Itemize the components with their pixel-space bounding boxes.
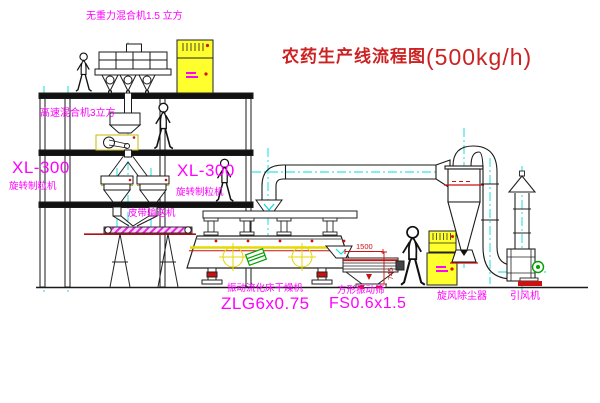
label-gravity-mixer: 无重力混合机1.5 立方 (86, 12, 183, 22)
fan-base (518, 281, 542, 286)
indicator-dot (451, 235, 454, 238)
label-granulator-mid-name: 旋转制粒机 (176, 188, 224, 198)
label-granulator-left-name: 旋转制粒机 (9, 182, 57, 192)
label-belt-conveyor: 皮带输送机 (128, 209, 176, 219)
title-capacity: (500kg/h) (426, 44, 532, 70)
label-dryer-name: 振动流化床干燥机 (227, 284, 303, 294)
indicator-dot (206, 44, 209, 47)
indicator-dot (450, 267, 453, 270)
fluid-bed-dryer (187, 211, 357, 284)
label-cyclone: 旋风除尘器 (437, 292, 487, 302)
label-dryer-model: ZLG6x0.75 (221, 295, 310, 312)
diagram-title: 农药生产线流程图(500kg/h) (282, 46, 532, 69)
exhaust-duct (262, 160, 450, 200)
dimension-screen-height: 745 (387, 267, 395, 280)
label-screen-model: FS0.6x1.5 (329, 296, 406, 312)
indicator-dot (204, 72, 207, 75)
person-on-platform (76, 53, 92, 91)
label-granulator-left-model: XL-300 (12, 159, 70, 176)
belt-conveyor (84, 227, 196, 287)
induced-draft-fan (507, 171, 544, 286)
label-granulator-mid-model: XL-300 (177, 162, 235, 179)
rain-cap (509, 176, 535, 192)
high-speed-mixer (96, 113, 140, 157)
title-text: 农药生产线流程图 (282, 47, 426, 66)
dimension-screen-length: 1500 (356, 243, 373, 251)
label-fan: 引风机 (510, 292, 540, 302)
person-ground (401, 227, 425, 285)
control-cabinet-ground (427, 231, 457, 285)
screen-motor (396, 261, 404, 270)
process-flow-diagram: 农药生产线流程图(500kg/h) 无重力混合机1.5 立方 高速混合机3立方 … (0, 0, 600, 403)
label-high-speed-mixer: 高速混合机3立方 (40, 109, 116, 119)
bucket-elevator-cabinet-upper (177, 40, 213, 93)
